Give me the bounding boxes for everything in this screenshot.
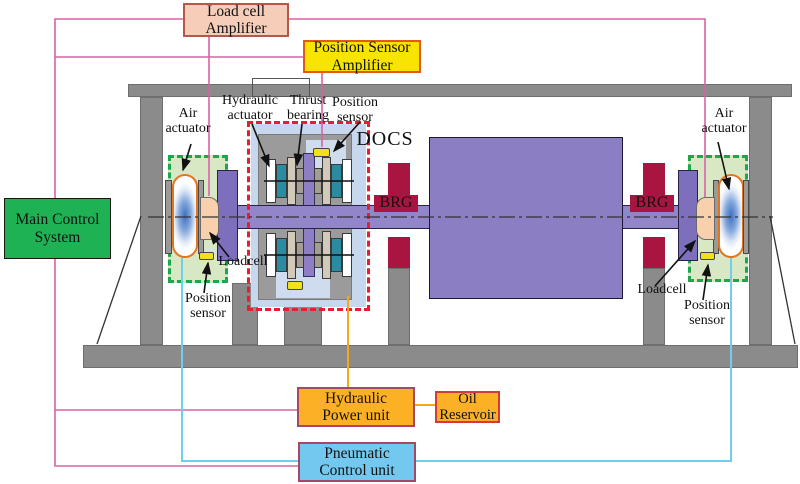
air-actuator-right bbox=[718, 174, 744, 258]
brg-left-label: BRG bbox=[374, 195, 418, 212]
brg-right-label: BRG bbox=[630, 195, 674, 212]
pneumatic-control-unit-label: Pneumatic bbox=[324, 445, 389, 462]
shaft-disk-right bbox=[678, 170, 698, 261]
air-actuator-left bbox=[172, 174, 198, 258]
loadcell-left-body bbox=[200, 197, 219, 240]
test-rig-diagram: Load cell Amplifier Position Sensor Ampl… bbox=[0, 0, 800, 484]
oil-reservoir-label: Reservoir bbox=[439, 407, 495, 423]
pneumatic-control-unit-label: Control unit bbox=[319, 462, 394, 479]
position-sensor-amplifier-box: Position Sensor Amplifier bbox=[303, 40, 421, 73]
shaft-disk-left bbox=[217, 170, 238, 261]
actuator-plate bbox=[165, 180, 172, 254]
oil-reservoir-box: Oil Reservoir bbox=[435, 391, 500, 423]
docs-label: DOCS bbox=[352, 129, 418, 150]
position-sensor-right-chip bbox=[700, 252, 715, 260]
brg-left-bottom bbox=[388, 237, 410, 268]
loadcell-left-label: Loadcell bbox=[213, 255, 273, 270]
frame-base bbox=[83, 345, 798, 368]
pedestal-brg-left bbox=[388, 268, 410, 345]
loadcell-right-body bbox=[696, 197, 715, 240]
main-control-system-label: Main Control bbox=[16, 211, 100, 228]
rotor bbox=[429, 137, 623, 299]
hydraulic-power-unit-label: Hydraulic bbox=[325, 390, 387, 407]
main-control-system-box: Main Control System bbox=[4, 198, 111, 259]
position-sensor-docs-label: Position sensor bbox=[322, 96, 388, 125]
brg-right-bottom bbox=[643, 237, 665, 268]
main-control-system-label: System bbox=[35, 229, 81, 246]
pneumatic-control-unit-box: Pneumatic Control unit bbox=[298, 442, 416, 482]
position-sensor-right-label: Position sensor bbox=[671, 299, 743, 328]
load-cell-amplifier-box: Load cell Amplifier bbox=[183, 3, 289, 37]
air-actuator-right-label: Air actuator bbox=[682, 107, 766, 136]
position-sensor-left-label: Position sensor bbox=[172, 292, 244, 321]
actuator-plate bbox=[743, 180, 749, 254]
position-sensor-amplifier-label: Amplifier bbox=[331, 57, 392, 74]
loadcell-right-label: Loadcell bbox=[631, 283, 693, 298]
position-sensor-amplifier-label: Position Sensor bbox=[314, 39, 411, 56]
pedestal-brg-right bbox=[643, 268, 665, 345]
right-strut bbox=[770, 216, 795, 344]
position-sensor-left-chip bbox=[199, 252, 214, 260]
hydraulic-power-unit-label: Power unit bbox=[322, 407, 390, 424]
load-cell-amplifier-label: Load cell bbox=[207, 3, 265, 20]
load-cell-amplifier-label: Amplifier bbox=[205, 20, 266, 37]
oil-reservoir-label: Oil bbox=[458, 391, 477, 407]
hydraulic-power-unit-box: Hydraulic Power unit bbox=[297, 387, 415, 427]
